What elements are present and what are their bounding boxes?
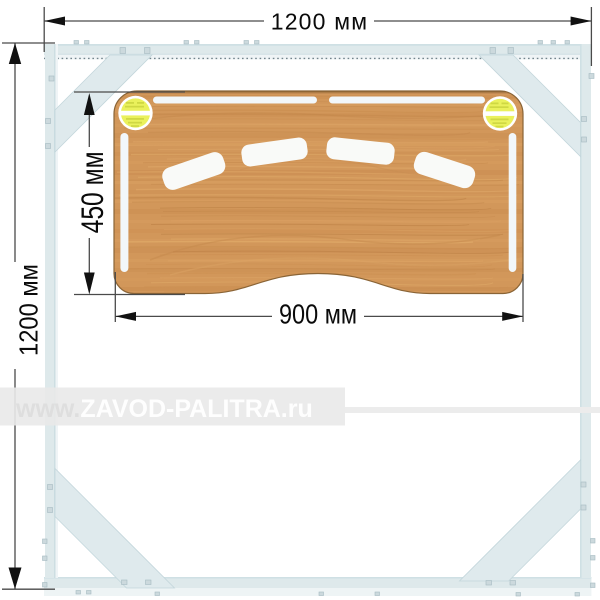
- svg-text:900 мм: 900 мм: [279, 299, 357, 330]
- svg-text:450 мм: 450 мм: [74, 151, 110, 233]
- svg-text:1200 мм: 1200 мм: [14, 264, 44, 356]
- svg-text:1200 мм: 1200 мм: [271, 9, 369, 35]
- svg-text:www.ZAVOD-PALITRA.ru: www.ZAVOD-PALITRA.ru: [15, 395, 313, 423]
